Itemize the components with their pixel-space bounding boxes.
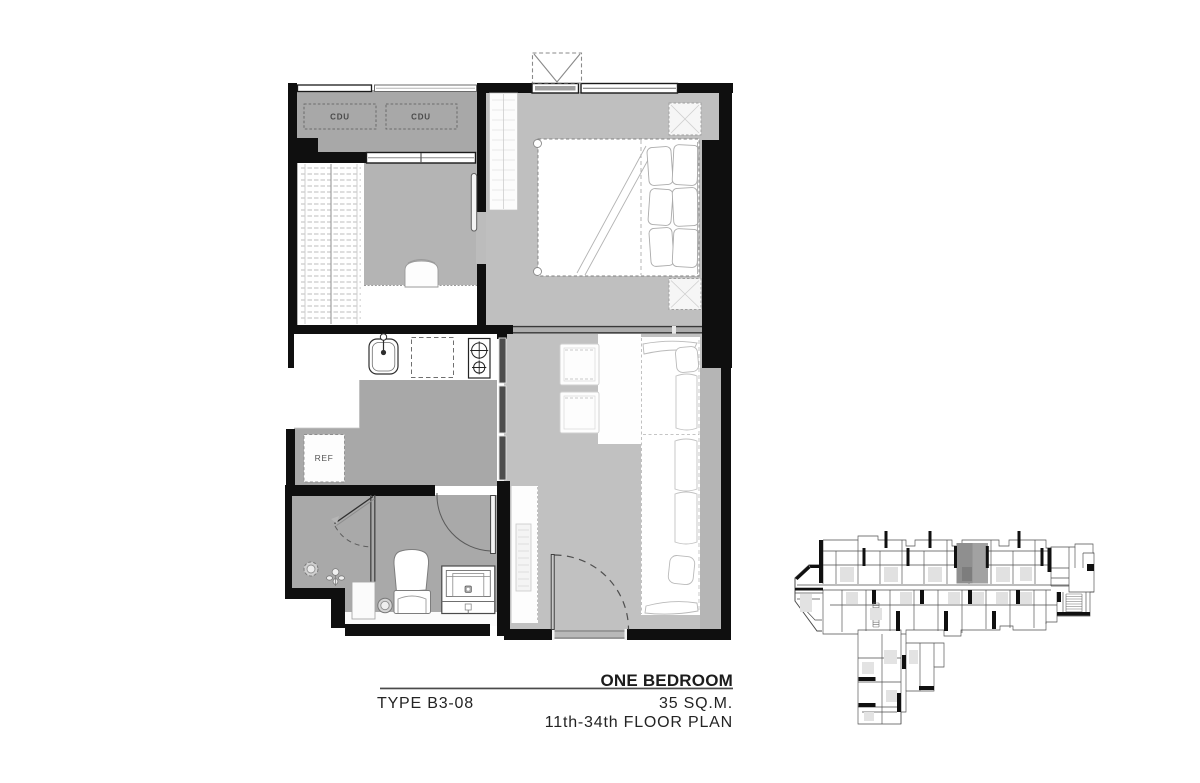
- svg-text:CDU: CDU: [411, 113, 431, 122]
- svg-text:35 SQ.M.: 35 SQ.M.: [659, 695, 733, 712]
- svg-text:TYPE B3-08: TYPE B3-08: [377, 695, 474, 712]
- svg-text:ONE BEDROOM: ONE BEDROOM: [600, 671, 733, 690]
- svg-text:11th-34th FLOOR PLAN: 11th-34th FLOOR PLAN: [545, 714, 733, 731]
- svg-text:REF: REF: [315, 453, 334, 463]
- svg-text:CDU: CDU: [330, 113, 350, 122]
